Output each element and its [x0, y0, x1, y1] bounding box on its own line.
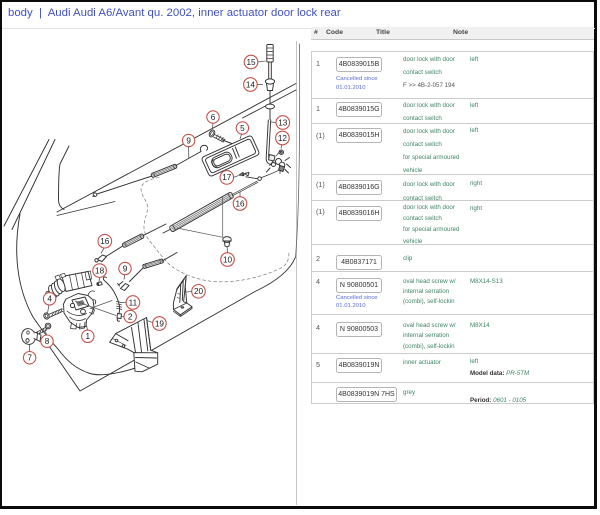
svg-text:20: 20	[194, 287, 204, 296]
svg-text:9: 9	[186, 136, 191, 145]
svg-text:17: 17	[222, 173, 232, 182]
svg-text:6: 6	[211, 113, 216, 122]
svg-text:9: 9	[123, 264, 128, 273]
svg-text:13: 13	[278, 118, 288, 127]
svg-text:1: 1	[86, 332, 91, 341]
svg-text:4: 4	[47, 295, 52, 304]
svg-text:10: 10	[223, 255, 233, 264]
svg-text:11: 11	[129, 298, 138, 307]
svg-text:5: 5	[240, 124, 245, 133]
svg-text:14: 14	[246, 80, 256, 89]
svg-text:16: 16	[235, 199, 245, 208]
svg-text:19: 19	[155, 319, 165, 328]
svg-text:12: 12	[278, 134, 288, 143]
svg-text:16: 16	[100, 237, 110, 246]
svg-text:18: 18	[95, 266, 105, 275]
svg-text:2: 2	[128, 312, 133, 321]
svg-text:15: 15	[246, 58, 256, 67]
svg-text:7: 7	[27, 354, 32, 363]
svg-text:8: 8	[45, 337, 50, 346]
